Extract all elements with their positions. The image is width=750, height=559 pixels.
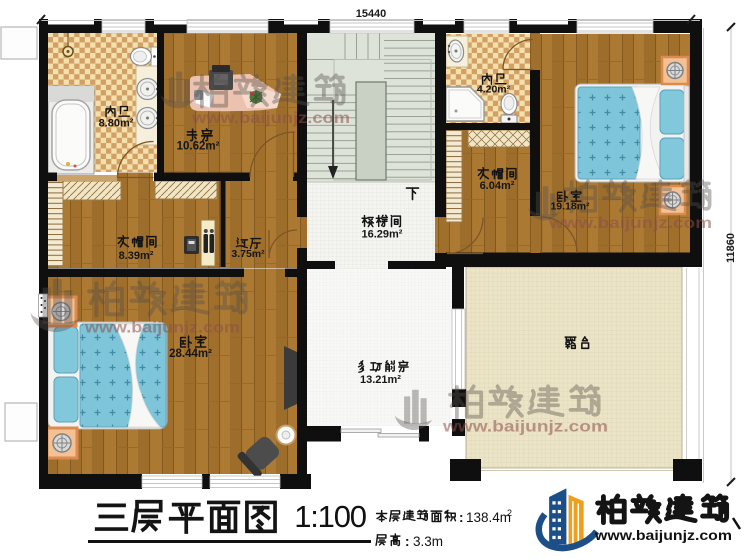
svg-text:4.20m²: 4.20m² bbox=[477, 84, 511, 96]
svg-text:15440: 15440 bbox=[356, 8, 387, 20]
svg-text:www.baijunjz.com: www.baijunjz.com bbox=[84, 320, 240, 337]
svg-text:19.18m²: 19.18m² bbox=[550, 201, 590, 213]
svg-text:www.baijunjz.com: www.baijunjz.com bbox=[191, 110, 350, 127]
svg-text:www.baijunjz.com: www.baijunjz.com bbox=[548, 215, 712, 232]
svg-text:28.44m²: 28.44m² bbox=[169, 348, 212, 360]
svg-text::: : bbox=[459, 510, 464, 525]
svg-text:13.21m²: 13.21m² bbox=[360, 374, 401, 386]
svg-text:8.80m²: 8.80m² bbox=[99, 118, 134, 130]
svg-text:6.04m²: 6.04m² bbox=[480, 180, 515, 192]
svg-text::: : bbox=[405, 534, 410, 549]
svg-text:www.baijunjz.com: www.baijunjz.com bbox=[594, 527, 732, 543]
svg-text:16.29m²: 16.29m² bbox=[362, 229, 403, 241]
svg-text:1:100: 1:100 bbox=[294, 499, 367, 534]
svg-text:3.75m²: 3.75m² bbox=[231, 248, 265, 260]
svg-text:8.39m²: 8.39m² bbox=[119, 250, 154, 262]
svg-text:2: 2 bbox=[507, 508, 512, 518]
svg-text:11860: 11860 bbox=[725, 233, 737, 263]
svg-text:www.baijunjz.com: www.baijunjz.com bbox=[442, 419, 608, 436]
svg-text:3.3m: 3.3m bbox=[413, 534, 443, 549]
svg-text:10.62m²: 10.62m² bbox=[177, 141, 220, 153]
svg-text:138.4m: 138.4m bbox=[466, 510, 511, 525]
